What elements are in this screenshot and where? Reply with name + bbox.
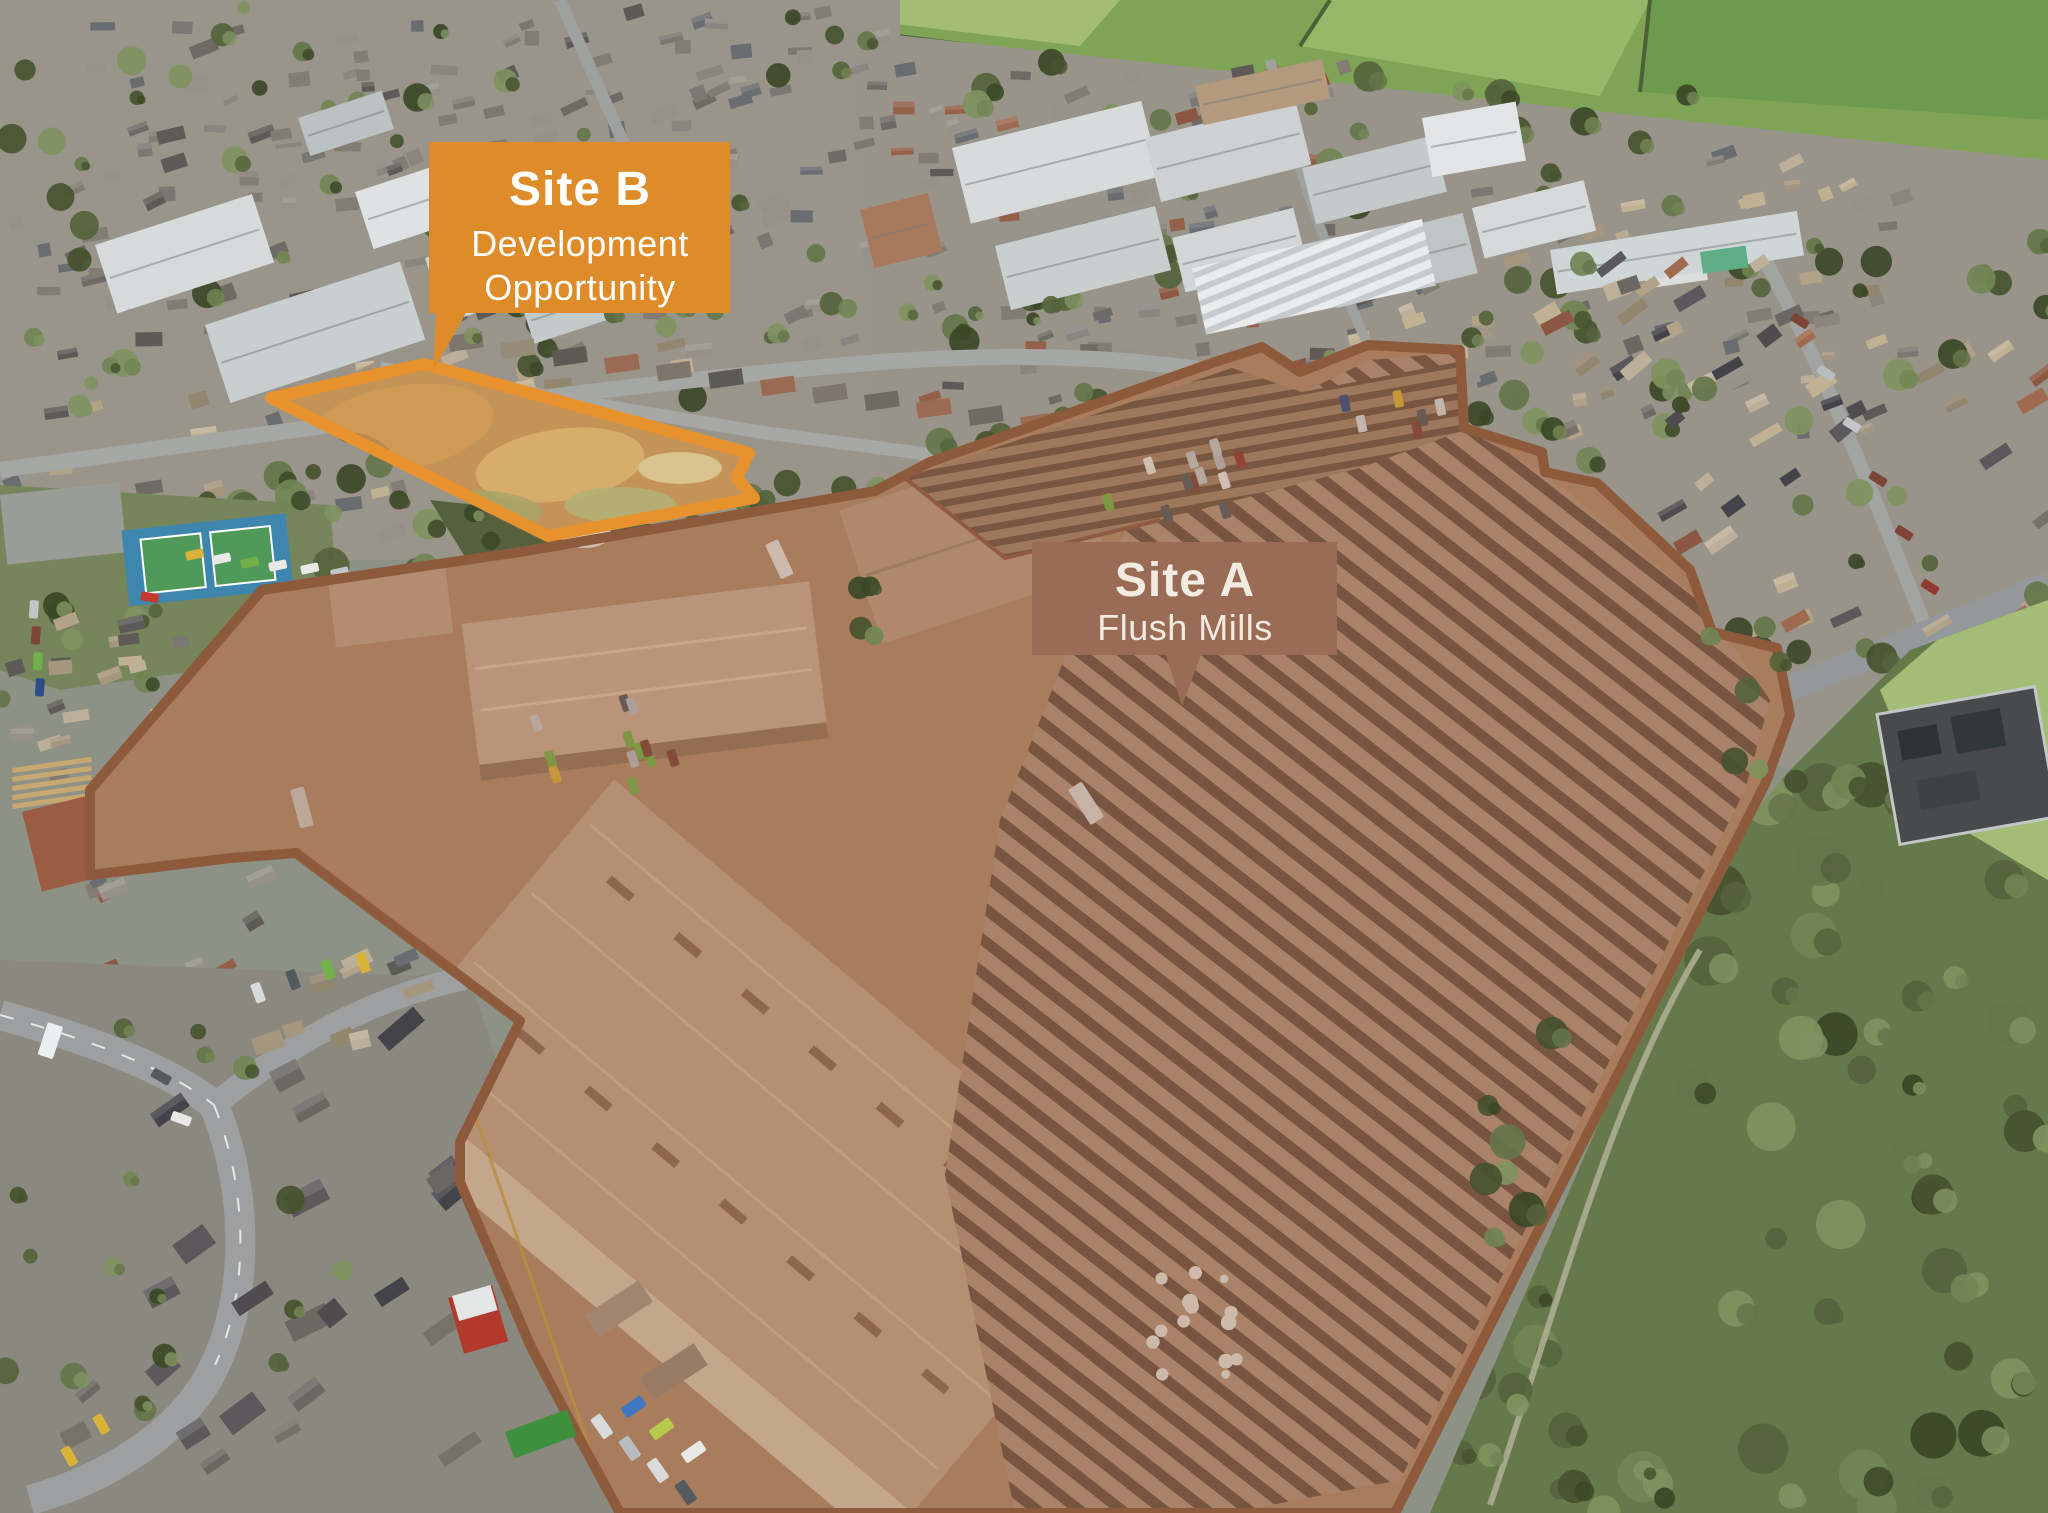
- electrical-substation: [1877, 687, 2048, 845]
- site-b-label-line1: Development: [471, 223, 689, 264]
- aerial-photo-scene: Site B Development Opportunity Site A Fl…: [0, 0, 2048, 1513]
- site-b-label-line2: Opportunity: [484, 267, 676, 308]
- site-a-label-subtitle: Flush Mills: [1097, 607, 1273, 648]
- site-b-label-title: Site B: [509, 163, 651, 216]
- aerial-photo: Site B Development Opportunity Site A Fl…: [0, 0, 2048, 1513]
- site-a-label-title: Site A: [1115, 554, 1255, 607]
